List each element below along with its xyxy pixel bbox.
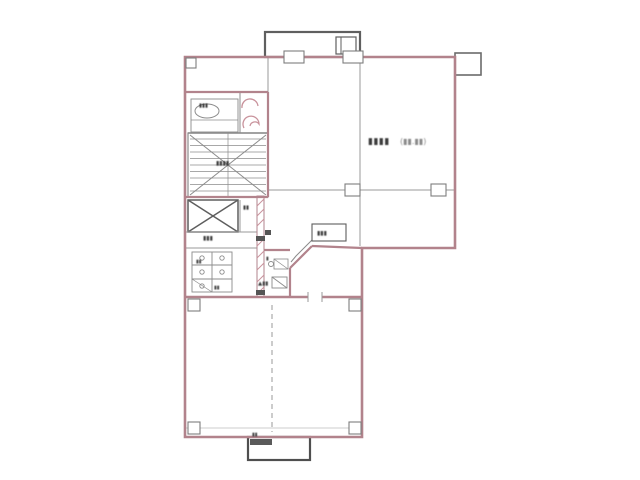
kitchen-fixture-diagonal [272,277,287,288]
machine-room-label: ▮▮▮ [199,103,208,109]
entrance-porch [248,437,310,460]
stairs-label: ▮▮▮▮ [216,160,229,167]
opening-gap [308,293,322,301]
column-marker [349,422,361,434]
column-marker [345,184,360,196]
ev-hall-label: ▮▮▮ [203,235,213,242]
washroom-diagonal [192,279,212,292]
kitchen-side-label: ▮ [266,256,269,262]
door-jamb [256,290,265,295]
washroom [192,252,232,292]
callout-label: ▮▮▮ [317,230,327,237]
diagonal-wall [290,246,312,268]
elevator [188,200,238,232]
kitchenette [269,262,288,289]
column-marker [349,299,361,311]
column-marker [284,51,304,63]
floor-plan-page: ▮▮▮▮ (▮▮.▮▮) ▮▮▮ ▮▮▮▮ ▮▮ ▮▮▮ ▮▮ ▮▮ ▮ ▲▮▮… [0,0,640,480]
door-jamb [256,236,265,241]
kitchen-sink [269,262,274,267]
kitchen-label: ▲▮▮ [258,281,268,287]
porch-step [250,439,272,445]
sink-fixture [220,270,224,274]
grid-lines [185,57,455,432]
stall-door-arc [242,99,258,108]
column-marker [188,299,200,311]
washroom-label-2: ▮▮ [214,285,220,291]
sink-fixture [200,270,204,274]
shaft-label: ▮▮ [243,205,249,211]
sink-fixture [200,284,204,288]
columns [186,51,446,434]
labels: ▮▮▮▮ (▮▮.▮▮) ▮▮▮ ▮▮▮▮ ▮▮ ▮▮▮ ▮▮ ▮▮ ▮ ▲▮▮… [196,103,426,438]
floor-plan-drawing: ▮▮▮▮ (▮▮.▮▮) ▮▮▮ ▮▮▮▮ ▮▮ ▮▮▮ ▮▮ ▮▮ ▮ ▲▮▮… [0,0,640,480]
column-marker [186,58,196,68]
washroom-label: ▮▮ [196,259,202,265]
column-marker [431,184,446,196]
panel-diagonal [274,259,288,269]
door-opening [308,292,322,302]
porch-label: ▮▮ [252,432,258,438]
toilet-stalls [242,99,259,128]
stall-door-arc [243,116,259,128]
column-marker [188,422,200,434]
main-room-area-label: (▮▮.▮▮) [400,137,426,146]
main-room-label: ▮▮▮▮ [368,137,390,147]
sink-fixture [220,256,224,260]
right-protrusion [455,53,481,75]
step-wall [312,246,362,248]
column-marker [343,51,363,63]
leader-line [291,240,312,262]
machine-room [188,92,268,133]
door-jamb [265,230,271,235]
